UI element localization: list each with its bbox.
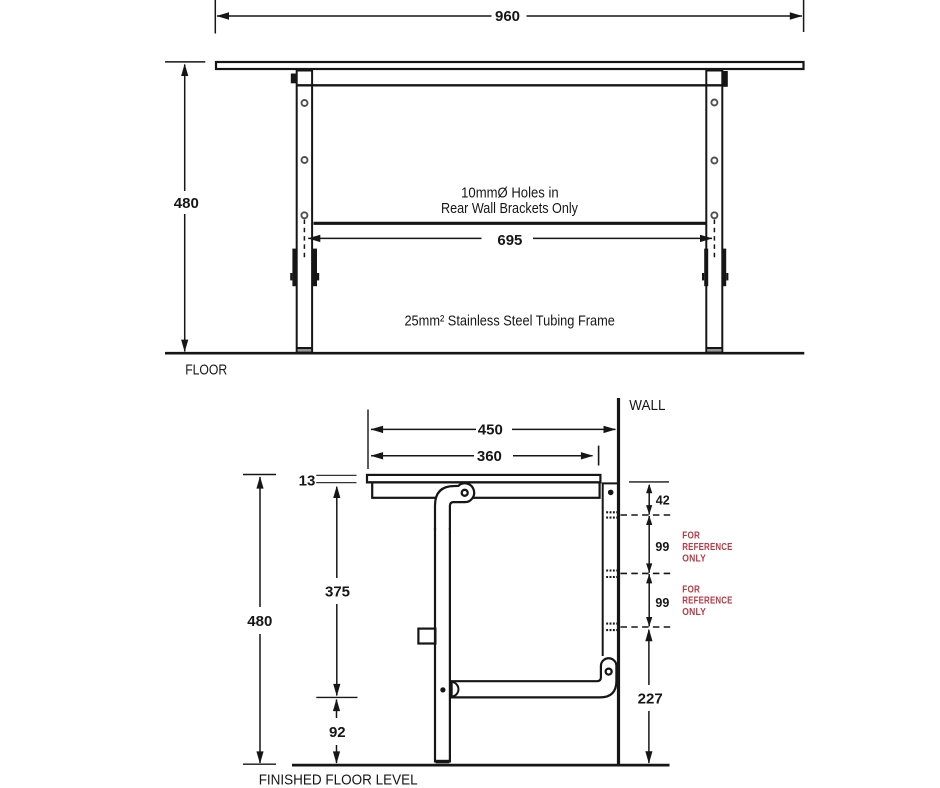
svg-text:480: 480 <box>247 613 272 630</box>
svg-text:Rear Wall Brackets Only: Rear Wall Brackets Only <box>441 200 578 217</box>
svg-text:ONLY: ONLY <box>682 607 706 618</box>
svg-text:REFERENCE: REFERENCE <box>682 596 733 607</box>
svg-text:227: 227 <box>638 690 663 707</box>
svg-text:99: 99 <box>655 596 669 610</box>
svg-text:13: 13 <box>299 472 316 489</box>
svg-text:FOR: FOR <box>682 584 700 595</box>
svg-text:92: 92 <box>329 724 346 741</box>
svg-text:42: 42 <box>656 493 670 507</box>
svg-text:450: 450 <box>478 421 503 438</box>
svg-text:375: 375 <box>325 583 350 600</box>
svg-text:99: 99 <box>655 540 669 554</box>
svg-text:FLOOR: FLOOR <box>185 362 227 379</box>
svg-text:960: 960 <box>495 8 520 25</box>
svg-text:FOR: FOR <box>682 531 700 542</box>
svg-text:695: 695 <box>497 232 522 249</box>
svg-text:25mm² Stainless Steel Tubing F: 25mm² Stainless Steel Tubing Frame <box>404 312 615 329</box>
svg-text:ONLY: ONLY <box>682 553 706 564</box>
svg-text:WALL: WALL <box>629 397 665 414</box>
svg-text:FINISHED FLOOR LEVEL: FINISHED FLOOR LEVEL <box>259 771 418 788</box>
svg-text:360: 360 <box>477 448 502 465</box>
svg-text:REFERENCE: REFERENCE <box>682 542 733 553</box>
svg-text:480: 480 <box>174 195 199 212</box>
